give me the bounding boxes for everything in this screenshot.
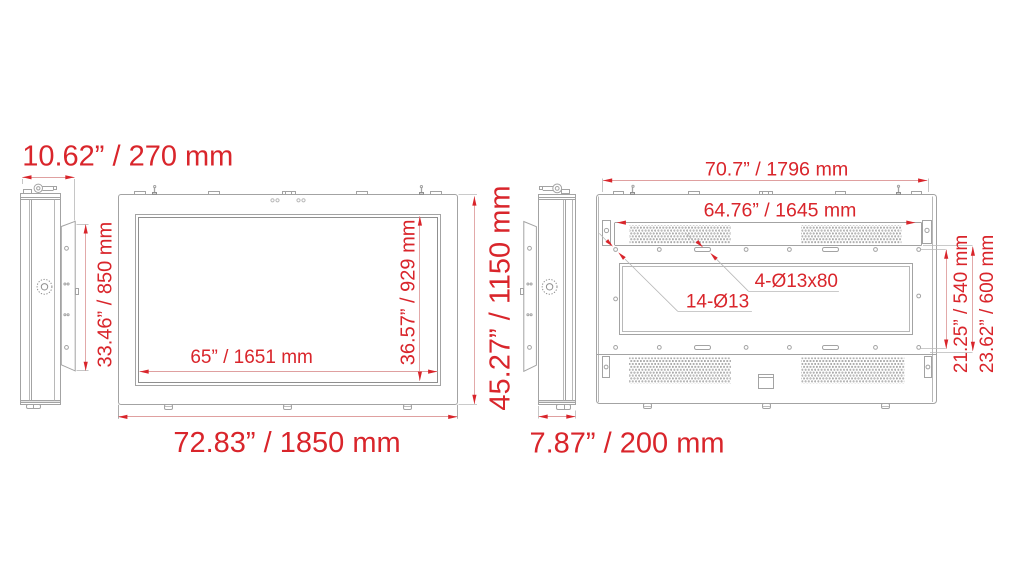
svg-text:64.76” / 1645 mm: 64.76” / 1645 mm — [704, 200, 857, 222]
svg-text:65” / 1651 mm: 65” / 1651 mm — [190, 347, 313, 368]
svg-text:36.57” / 929 mm: 36.57” / 929 mm — [398, 220, 420, 366]
svg-text:70.7” / 1796 mm: 70.7” / 1796 mm — [705, 159, 848, 181]
svg-text:45.27” / 1150 mm: 45.27” / 1150 mm — [485, 185, 517, 410]
svg-text:33.46” / 850 mm: 33.46” / 850 mm — [95, 222, 117, 368]
svg-text:10.62” / 270 mm: 10.62” / 270 mm — [22, 140, 233, 172]
svg-text:21.25” / 540 mm: 21.25” / 540 mm — [951, 235, 972, 373]
svg-text:4-Ø13x80: 4-Ø13x80 — [755, 271, 838, 292]
svg-text:14-Ø13: 14-Ø13 — [686, 292, 749, 313]
svg-text:72.83” / 1850 mm: 72.83” / 1850 mm — [173, 427, 400, 459]
svg-text:23.62” / 600 mm: 23.62” / 600 mm — [977, 235, 998, 373]
svg-text:7.87” / 200 mm: 7.87” / 200 mm — [529, 427, 724, 459]
